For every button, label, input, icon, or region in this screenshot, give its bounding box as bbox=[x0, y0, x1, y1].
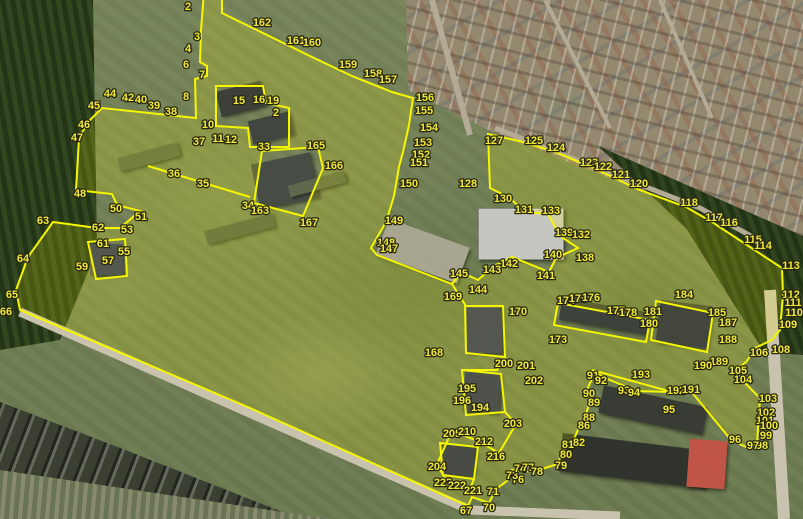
vertex-label-48: 48 bbox=[74, 188, 86, 200]
vertex-label-97: 97 bbox=[747, 440, 759, 452]
vertex-label-139: 139 bbox=[555, 227, 573, 239]
vertex-label-212: 212 bbox=[475, 436, 493, 448]
vertex-label-47: 47 bbox=[71, 132, 83, 144]
vertex-label-62: 62 bbox=[92, 222, 104, 234]
vertex-label-53: 53 bbox=[121, 224, 133, 236]
vertex-label-106: 106 bbox=[750, 347, 768, 359]
vertex-label-203: 203 bbox=[504, 418, 522, 430]
vertex-label-120: 120 bbox=[630, 178, 648, 190]
vertex-label-33: 33 bbox=[258, 141, 270, 153]
vertex-label-12: 12 bbox=[225, 134, 237, 146]
vertex-label-82: 82 bbox=[573, 437, 585, 449]
vertex-label-156: 156 bbox=[416, 92, 434, 104]
vertex-label-104: 104 bbox=[734, 374, 753, 386]
vertex-label-65: 65 bbox=[6, 289, 18, 301]
vertex-label-95: 95 bbox=[663, 404, 675, 416]
vertex-label-19: 19 bbox=[267, 95, 279, 107]
vertex-label-96: 96 bbox=[729, 434, 741, 446]
vertex-label-153: 153 bbox=[414, 137, 432, 149]
vertex-label-202: 202 bbox=[525, 375, 543, 387]
vertex-label-221: 221 bbox=[464, 485, 482, 497]
vertex-label-190: 190 bbox=[694, 360, 712, 372]
vertex-label-196: 196 bbox=[453, 395, 471, 407]
vertex-label-163: 163 bbox=[251, 205, 269, 217]
vertex-label-195: 195 bbox=[458, 383, 476, 395]
vertex-label-145: 145 bbox=[450, 268, 468, 280]
vertex-label-108: 108 bbox=[772, 344, 790, 356]
vertex-label-10: 10 bbox=[202, 119, 214, 131]
map-canvas[interactable]: 2162346784445424039384647485051625363615… bbox=[0, 0, 803, 519]
parcel-boundary bbox=[16, 0, 783, 506]
vertex-label-166: 166 bbox=[325, 160, 343, 172]
vertex-label-61: 61 bbox=[97, 238, 109, 250]
vertex-label-188: 188 bbox=[719, 334, 737, 346]
vertex-label-140: 140 bbox=[544, 249, 562, 261]
vertex-label-109: 109 bbox=[779, 319, 797, 331]
vertex-label-113: 113 bbox=[782, 260, 800, 272]
vertex-label-118: 118 bbox=[680, 197, 698, 209]
vertex-label-67: 67 bbox=[460, 505, 472, 517]
vertex-label-86: 86 bbox=[578, 420, 590, 432]
vertex-label-40: 40 bbox=[135, 94, 147, 106]
vertex-label-46: 46 bbox=[78, 119, 90, 131]
vertex-label-59: 59 bbox=[76, 261, 88, 273]
vertex-label-132: 132 bbox=[572, 229, 590, 241]
vertex-label-45: 45 bbox=[88, 100, 100, 112]
vertex-label-160: 160 bbox=[303, 37, 321, 49]
vertex-label-103: 103 bbox=[759, 393, 777, 405]
vertex-label-170: 170 bbox=[509, 306, 527, 318]
vertex-label-191: 191 bbox=[682, 384, 700, 396]
vertex-label-110: 110 bbox=[785, 307, 803, 319]
vertex-label-178: 178 bbox=[619, 307, 637, 319]
vertex-label-89: 89 bbox=[588, 397, 600, 409]
vertex-label-15: 15 bbox=[233, 95, 245, 107]
vertex-label-124: 124 bbox=[547, 142, 566, 154]
vertex-label-143: 143 bbox=[483, 264, 501, 276]
vertex-label-210: 210 bbox=[458, 426, 476, 438]
vertex-label-4: 4 bbox=[185, 43, 192, 55]
vertex-label-193: 193 bbox=[632, 369, 650, 381]
vertex-label-66: 66 bbox=[0, 306, 12, 318]
vertex-label-157: 157 bbox=[379, 74, 397, 86]
vertex-label-11: 11 bbox=[212, 133, 224, 145]
vertex-label-36: 36 bbox=[168, 168, 180, 180]
vertex-label-189: 189 bbox=[710, 356, 728, 368]
vertex-label-2: 2 bbox=[273, 107, 279, 119]
vertex-label-147: 147 bbox=[380, 243, 398, 255]
vertex-label-133: 133 bbox=[542, 205, 560, 217]
vertex-label-201: 201 bbox=[517, 360, 535, 372]
vertex-label-79: 79 bbox=[555, 460, 567, 472]
vertex-label-150: 150 bbox=[400, 178, 418, 190]
vertex-label-50: 50 bbox=[110, 203, 122, 215]
vertex-label-130: 130 bbox=[494, 193, 512, 205]
vertex-label-169: 169 bbox=[444, 291, 462, 303]
vertex-label-194: 194 bbox=[471, 402, 490, 414]
vertex-label-155: 155 bbox=[415, 105, 433, 117]
vertex-label-180: 180 bbox=[640, 318, 658, 330]
vertex-label-162: 162 bbox=[253, 17, 271, 29]
vertex-label-2: 2 bbox=[185, 1, 191, 13]
vertex-label-142: 142 bbox=[500, 258, 518, 270]
vertex-label-154: 154 bbox=[420, 122, 439, 134]
vertex-label-44: 44 bbox=[104, 88, 117, 100]
vertex-label-127: 127 bbox=[485, 135, 503, 147]
vertex-label-51: 51 bbox=[135, 211, 147, 223]
vertex-label-7: 7 bbox=[199, 69, 205, 81]
vertex-label-216: 216 bbox=[487, 451, 505, 463]
vertex-label-128: 128 bbox=[459, 178, 477, 190]
vertex-label-204: 204 bbox=[428, 461, 447, 473]
vertex-label-6: 6 bbox=[183, 59, 189, 71]
vertex-label-167: 167 bbox=[300, 217, 318, 229]
parcel-overlay: 2162346784445424039384647485051625363615… bbox=[0, 0, 803, 519]
vertex-label-138: 138 bbox=[576, 252, 594, 264]
vertex-label-181: 181 bbox=[644, 306, 662, 318]
vertex-label-121: 121 bbox=[612, 169, 630, 181]
vertex-label-37: 37 bbox=[193, 136, 205, 148]
vertex-label-57: 57 bbox=[102, 255, 114, 267]
vertex-label-42: 42 bbox=[122, 92, 134, 104]
vertex-label-71: 71 bbox=[487, 486, 499, 498]
vertex-label-159: 159 bbox=[339, 59, 357, 71]
vertex-label-64: 64 bbox=[17, 253, 30, 265]
vertex-label-144: 144 bbox=[469, 284, 488, 296]
vertex-label-16: 16 bbox=[253, 94, 265, 106]
vertex-label-168: 168 bbox=[425, 347, 443, 359]
vertex-label-176: 176 bbox=[582, 292, 600, 304]
vertex-label-78: 78 bbox=[531, 466, 543, 478]
vertex-label-92: 92 bbox=[595, 375, 607, 387]
vertex-label-94: 94 bbox=[628, 387, 641, 399]
vertex-label-165: 165 bbox=[307, 140, 325, 152]
vertex-label-116: 116 bbox=[720, 217, 738, 229]
vertex-label-55: 55 bbox=[118, 246, 130, 258]
vertex-label-8: 8 bbox=[183, 91, 189, 103]
vertex-label-200: 200 bbox=[495, 358, 513, 370]
vertex-label-173: 173 bbox=[549, 334, 567, 346]
vertex-label-184: 184 bbox=[675, 289, 694, 301]
vertex-label-187: 187 bbox=[719, 317, 737, 329]
vertex-label-149: 149 bbox=[385, 215, 403, 227]
vertex-label-38: 38 bbox=[165, 106, 177, 118]
vertex-label-63: 63 bbox=[37, 215, 49, 227]
vertex-label-70: 70 bbox=[483, 502, 495, 514]
vertex-label-122: 122 bbox=[594, 161, 612, 173]
vertex-label-35: 35 bbox=[197, 178, 209, 190]
vertex-label-141: 141 bbox=[537, 270, 555, 282]
vertex-label-125: 125 bbox=[525, 135, 543, 147]
vertex-label-151: 151 bbox=[410, 157, 428, 169]
vertex-label-3: 3 bbox=[194, 31, 200, 43]
vertex-label-39: 39 bbox=[148, 100, 160, 112]
vertex-label-114: 114 bbox=[754, 240, 773, 252]
vertex-label-131: 131 bbox=[515, 204, 533, 216]
